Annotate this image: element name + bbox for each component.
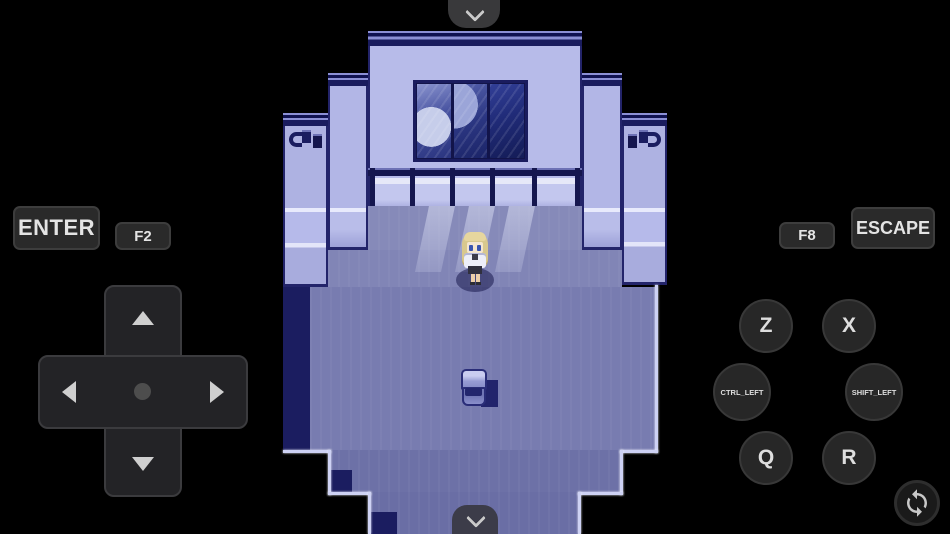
scroll-bracket-right-icon: [625, 126, 661, 152]
hide-controls-tab-bottom[interactable]: [452, 505, 498, 534]
wall-outer-left-cornice: [283, 113, 328, 126]
window-pane-left: [417, 84, 451, 158]
window-pane-middle: [454, 84, 488, 158]
window: [413, 80, 528, 162]
z-button[interactable]: Z: [739, 299, 793, 353]
shadow-strip-left: [283, 287, 310, 450]
ledge-inner-left: [328, 208, 368, 250]
f2-button[interactable]: F2: [115, 222, 171, 250]
escape-button[interactable]: ESCAPE: [851, 207, 935, 249]
dpad-left-icon[interactable]: [62, 381, 76, 403]
window-pane-right: [490, 84, 524, 158]
wall-mid-left: [328, 73, 368, 208]
dpad-up-icon[interactable]: [132, 311, 154, 325]
dpad[interactable]: [38, 285, 248, 497]
dpad-right-icon[interactable]: [210, 381, 224, 403]
q-button[interactable]: Q: [739, 431, 793, 485]
wall-mid-right-cornice: [582, 73, 622, 86]
enter-button[interactable]: ENTER: [13, 206, 100, 250]
game-viewport[interactable]: [283, 0, 667, 534]
dpad-center-dot: [134, 383, 151, 400]
ledge-outer-right: [622, 208, 667, 285]
railing-bar: [368, 168, 582, 176]
chevron-down-icon: [468, 511, 483, 526]
sync-rotate-icon: [902, 488, 932, 518]
chair: [461, 369, 501, 409]
hide-controls-tab-top[interactable]: [448, 0, 500, 28]
x-button[interactable]: X: [822, 299, 876, 353]
wall-center-cornice: [368, 31, 582, 46]
player-character: [460, 231, 490, 293]
f8-button[interactable]: F8: [779, 222, 835, 249]
r-button[interactable]: R: [822, 431, 876, 485]
rotate-screen-button[interactable]: [894, 480, 940, 526]
wall-mid-left-cornice: [328, 73, 368, 86]
ledge-outer-left: [283, 208, 328, 287]
railing: [368, 168, 582, 208]
dpad-down-icon[interactable]: [132, 457, 154, 471]
railing-panels: [370, 178, 580, 206]
wall-outer-right-cornice: [622, 113, 667, 126]
step-shadow-2: [371, 512, 397, 534]
floor-lower: [328, 450, 620, 492]
ledge-inner-right: [582, 208, 622, 250]
ctrl-left-button[interactable]: CTRL_LEFT: [713, 363, 771, 421]
chevron-down-icon: [467, 5, 482, 20]
shift-left-button[interactable]: SHIFT_LEFT: [845, 363, 903, 421]
step-shadow-1: [330, 470, 352, 492]
scroll-bracket-left-icon: [289, 126, 325, 152]
wall-mid-right: [582, 73, 622, 208]
